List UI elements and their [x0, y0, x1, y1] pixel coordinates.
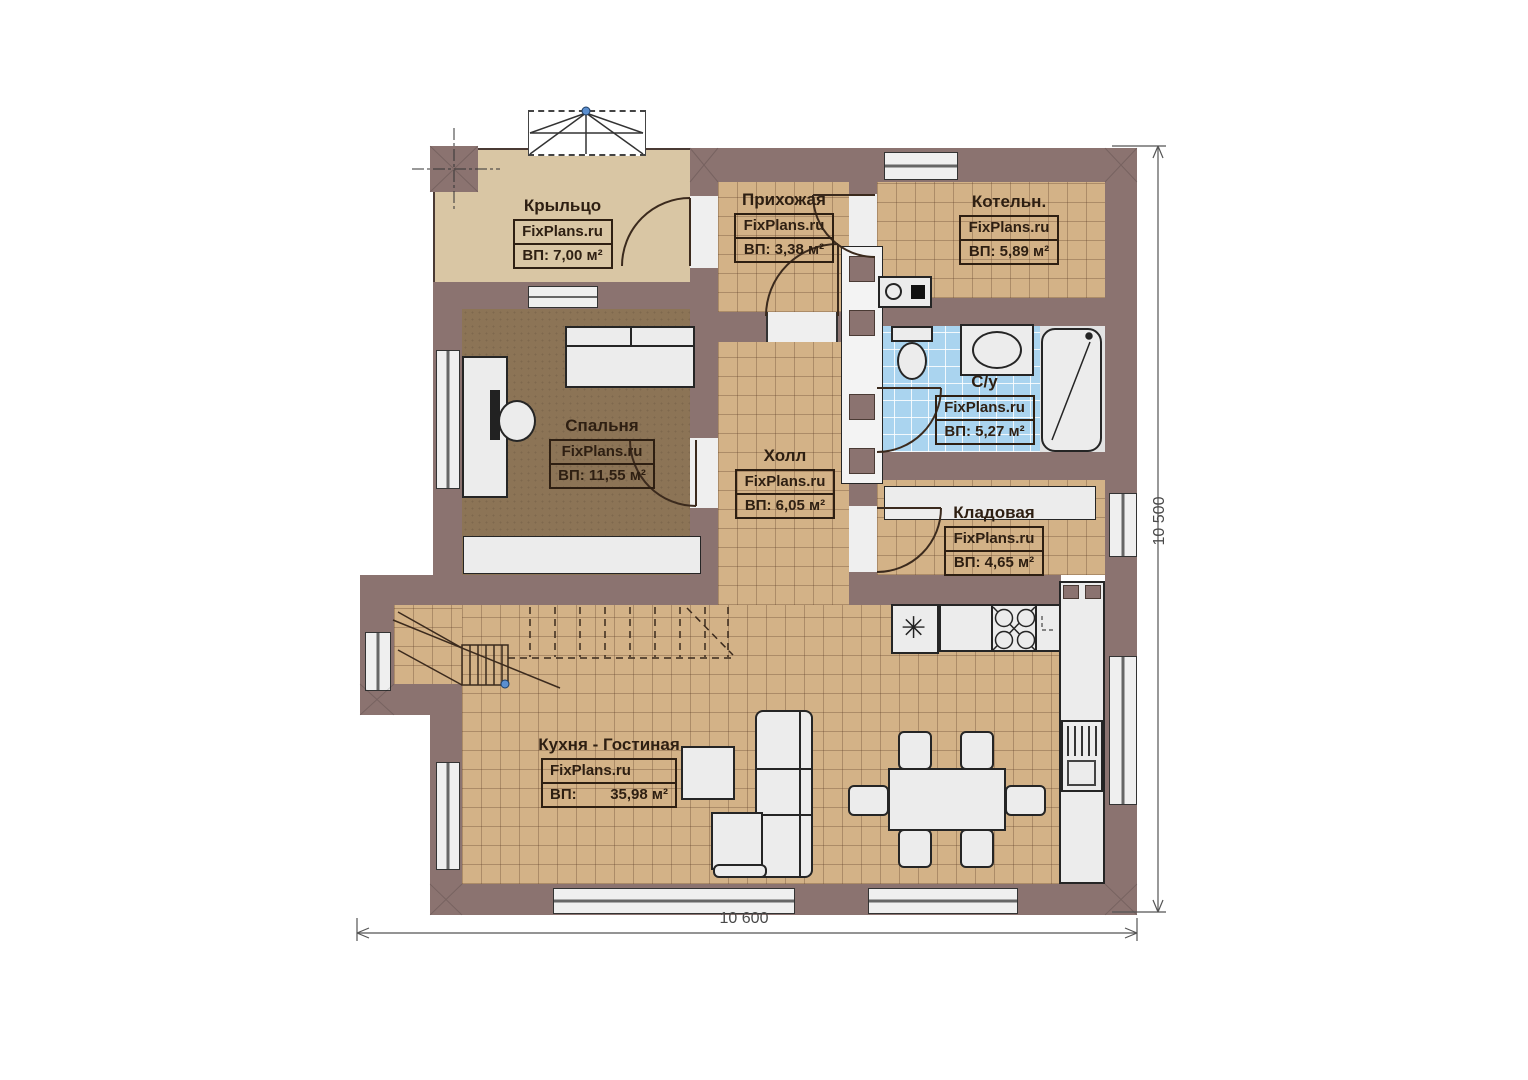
sofa-chaise [711, 812, 763, 870]
window [365, 632, 391, 691]
room-area: ВП: 35,98 м² [543, 782, 675, 806]
wall [849, 148, 877, 196]
watermark: FixPlans.ru [937, 397, 1033, 419]
room-label-kitchen-living: Кухня - Гостиная FixPlans.ru ВП: 35,98 м… [534, 735, 684, 808]
wall [877, 452, 1137, 480]
floor-plan-canvas: ✳ [0, 0, 1528, 1080]
room-area: ВП: 5,89 м² [961, 239, 1057, 263]
bed [565, 326, 695, 388]
window [884, 152, 958, 180]
porch-steps [528, 110, 646, 156]
room-area: ВП: 4,65 м² [946, 550, 1042, 574]
bathtub-icon [1041, 328, 1102, 452]
stove-icon [991, 604, 1037, 652]
dining-table [888, 768, 1006, 831]
front-door-opening [690, 196, 718, 268]
bedroom-wardrobe [463, 536, 701, 574]
room-label-storage: Кладовая FixPlans.ru ВП: 4,65 м² [932, 503, 1056, 576]
entry-hall-opening [766, 312, 838, 342]
room-name: Котельн. [948, 192, 1070, 212]
office-chair [498, 400, 536, 442]
room-info-box: FixPlans.ru ВП: 6,05 м² [735, 469, 835, 519]
fridge-icon [1061, 720, 1103, 792]
dining-chair [898, 731, 932, 770]
dimension-bottom-label: 10 600 [692, 910, 796, 928]
room-label-hall: Холл FixPlans.ru ВП: 6,05 м² [727, 446, 843, 519]
bedroom-door-opening [690, 438, 718, 508]
window [868, 888, 1018, 914]
watermark: FixPlans.ru [961, 217, 1057, 239]
room-area: ВП: 11,55 м² [551, 463, 653, 487]
room-area: ВП: 6,05 м² [737, 493, 833, 517]
room-area: ВП: 5,27 м² [937, 419, 1033, 443]
room-area: ВП: 3,38 м² [736, 237, 832, 261]
washbasin-icon [972, 331, 1022, 369]
vent-shaft [849, 448, 875, 474]
room-info-box: FixPlans.ru ВП: 5,89 м² [959, 215, 1059, 265]
window [1109, 656, 1137, 805]
dining-chair [1005, 785, 1046, 816]
sofa-armrest [713, 864, 767, 878]
sofa [755, 710, 813, 878]
room-area: ВП: 7,00 м² [515, 243, 611, 267]
desk-monitor [490, 390, 500, 440]
toilet-tank [891, 326, 933, 342]
dining-chair [960, 731, 994, 770]
watermark: FixPlans.ru [551, 441, 653, 463]
room-info-box: FixPlans.ru ВП: 3,38 м² [734, 213, 834, 263]
dining-chair [898, 829, 932, 868]
room-area-value: 35,98 м² [610, 785, 668, 805]
wall [849, 575, 1061, 605]
room-info-box: FixPlans.ru ВП: 5,27 м² [935, 395, 1035, 445]
room-name: Спальня [538, 416, 666, 436]
window [436, 350, 460, 489]
toilet-icon [897, 342, 927, 380]
porch-column [430, 146, 478, 192]
room-name: Холл [727, 446, 843, 466]
window [528, 286, 598, 308]
room-label-boiler: Котельн. FixPlans.ru ВП: 5,89 м² [948, 192, 1070, 265]
room-label-porch: Крыльцо FixPlans.ru ВП: 7,00 м² [500, 196, 625, 269]
boiler-door-opening [849, 194, 877, 254]
room-label-entry: Прихожая FixPlans.ru ВП: 3,38 м² [723, 190, 845, 263]
dining-chair [848, 785, 889, 816]
room-area-prefix: ВП: [550, 785, 577, 805]
watermark: FixPlans.ru [736, 215, 832, 237]
room-name: Кухня - Гостиная [534, 735, 684, 755]
room-label-bathroom: С/у FixPlans.ru ВП: 5,27 м² [927, 372, 1042, 445]
room-name: Кладовая [932, 503, 1056, 523]
room-info-box: FixPlans.ru ВП: 4,65 м² [944, 526, 1044, 576]
dimension-right-label: 10 500 [1151, 479, 1169, 563]
room-name: С/у [927, 372, 1042, 392]
room-name: Крыльцо [500, 196, 625, 216]
boiler-unit [878, 276, 932, 308]
counter-hob [1085, 585, 1101, 599]
room-label-bedroom: Спальня FixPlans.ru ВП: 11,55 м² [538, 416, 666, 489]
kitchen-sink-icon: ✳ [901, 614, 926, 644]
counter-hob [1063, 585, 1079, 599]
vent-shaft [849, 310, 875, 336]
room-info-box: FixPlans.ru ВП: 7,00 м² [513, 219, 613, 269]
dining-chair [960, 829, 994, 868]
watermark: FixPlans.ru [515, 221, 611, 243]
coffee-table [681, 746, 735, 800]
kitchen-stair-bay-floor [394, 605, 462, 685]
room-info-box: FixPlans.ru ВП: 35,98 м² [541, 758, 677, 808]
watermark: FixPlans.ru [543, 760, 675, 782]
window [1109, 493, 1137, 557]
vent-shaft [849, 256, 875, 282]
watermark: FixPlans.ru [737, 471, 833, 493]
watermark: FixPlans.ru [946, 528, 1042, 550]
wall [360, 575, 718, 605]
window [436, 762, 460, 870]
vent-shaft [849, 394, 875, 420]
storage-door-opening [849, 506, 877, 572]
room-name: Прихожая [723, 190, 845, 210]
room-info-box: FixPlans.ru ВП: 11,55 м² [549, 439, 655, 489]
